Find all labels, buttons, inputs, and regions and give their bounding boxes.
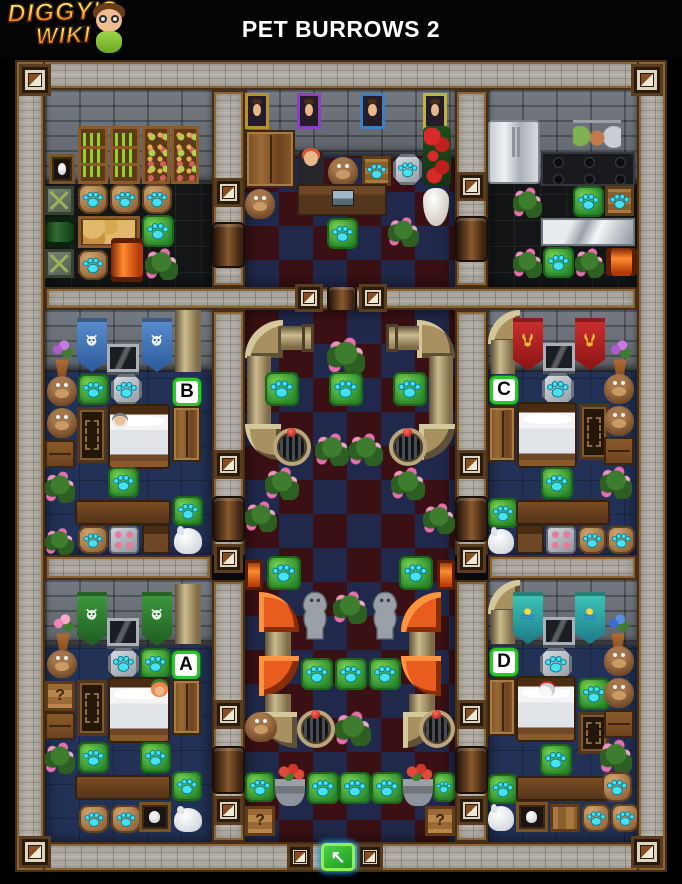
paw-tile [393, 372, 427, 406]
paw-tile [327, 218, 358, 249]
banner [513, 318, 543, 370]
paw-tile [329, 372, 363, 406]
mole-pet [604, 374, 634, 404]
banner [575, 592, 605, 644]
banner [77, 592, 107, 646]
paw-sack [78, 526, 108, 554]
mole-pet [604, 678, 634, 708]
bronze-pipe-elbow [417, 320, 455, 358]
rose-bush [423, 126, 451, 186]
bronze-pipe [281, 326, 303, 350]
wardrobe [488, 678, 516, 736]
bronze-pipe-cap [386, 324, 398, 352]
pink-flowers [333, 590, 367, 624]
pink-flowers [45, 470, 75, 503]
paw-tile [540, 744, 572, 776]
pink-flowers [265, 466, 299, 500]
wardrobe [172, 406, 201, 462]
bed [108, 677, 170, 743]
corner-block-icon [457, 172, 486, 201]
burrow-map: B??CA?D↖ [15, 60, 667, 872]
corner-block-icon [19, 64, 51, 96]
paw-tile [142, 215, 174, 247]
bronze-pipe [175, 584, 201, 644]
bed [516, 676, 576, 742]
room-label: D [490, 648, 518, 676]
orange-pipe [606, 248, 637, 276]
paw-tile [172, 771, 202, 801]
paw-sack [607, 526, 635, 554]
pink-flowers [45, 527, 74, 555]
room-pantry [45, 90, 212, 287]
television [543, 617, 575, 645]
pipe-vent-icon [389, 428, 427, 466]
door [212, 746, 245, 794]
stone-wall [45, 555, 212, 580]
pink-flowers [315, 432, 349, 466]
bed [517, 402, 577, 468]
paw-tile [78, 742, 109, 773]
white-pet [174, 808, 202, 832]
npc-girl [298, 150, 324, 188]
paw-sack [79, 805, 109, 833]
door [455, 496, 488, 542]
pet-picture [516, 802, 548, 832]
question-crate: ? [425, 806, 455, 836]
paw-tile [573, 186, 604, 217]
sleeping-dog [539, 683, 555, 698]
paw-tile [173, 496, 203, 526]
corner-block-icon [214, 178, 243, 207]
wardrobe [172, 679, 201, 735]
pink-flowers [513, 186, 542, 218]
armchair [516, 524, 544, 554]
paw-tile [267, 556, 301, 590]
corner-block-icon [287, 844, 313, 870]
paw-tile [543, 247, 574, 278]
flower-pot [604, 614, 632, 650]
paw-tile [140, 742, 171, 773]
gargoyle-statue [299, 584, 331, 646]
wardrobe [488, 406, 516, 462]
banner [575, 318, 605, 370]
pink-flowers [388, 216, 419, 247]
gargoyle-statue [369, 584, 401, 646]
pink-flowers [423, 502, 455, 534]
stone-wall [15, 60, 667, 90]
pink-flowers [45, 741, 75, 774]
corner-block-icon [357, 844, 383, 870]
dresser [45, 440, 75, 468]
flower-urn [275, 764, 305, 806]
wardrobe [245, 130, 295, 188]
portrait [245, 93, 269, 129]
paw-tile [399, 556, 433, 590]
rug [77, 680, 107, 736]
flower-urn [403, 764, 433, 806]
paw-tile [307, 772, 339, 804]
corner-block-icon [631, 64, 663, 96]
paw-tile [433, 772, 455, 802]
exit-arrow-button[interactable]: ↖ [321, 843, 355, 871]
corner-block-icon [214, 700, 243, 729]
bottle-shelf [110, 126, 140, 184]
paw-tile [245, 772, 275, 802]
fridge [488, 120, 540, 184]
mossy-crate [45, 186, 74, 215]
paw-tile [140, 648, 171, 679]
metal-cube [546, 526, 576, 554]
page-title: PET BURROWS 2 [0, 16, 682, 43]
bronze-pipe-elbow [245, 320, 283, 358]
orange-pipe-elbow [259, 592, 299, 632]
orange-pipe-elbow [401, 592, 441, 632]
orange-pipe-cap [437, 560, 455, 590]
bench [516, 776, 610, 801]
mole-pet [47, 408, 77, 438]
dresser [604, 437, 634, 465]
paw-sack [582, 804, 610, 832]
mole-pet [604, 406, 634, 436]
bronze-pipe [491, 610, 515, 644]
pink-flowers [575, 247, 604, 278]
pink-flowers [349, 432, 383, 466]
pot-rack [573, 120, 621, 148]
sleeping-dwarf [112, 416, 129, 430]
bottle-shelf [78, 126, 108, 184]
banner [513, 592, 543, 644]
green-barrel [45, 217, 74, 247]
door [212, 496, 245, 542]
paw-tile [488, 498, 518, 528]
paw-crate [605, 186, 634, 216]
food-shelf [171, 126, 199, 184]
kitchen-counter [541, 218, 635, 246]
corner-block-icon [214, 796, 243, 825]
paw-tile [488, 774, 518, 804]
paw-tile [369, 658, 401, 690]
room-label: A [172, 651, 200, 679]
pipe-vent-icon [273, 428, 311, 466]
bronze-pipe-cap [302, 324, 314, 352]
pink-flowers [145, 247, 178, 280]
mole-pet [245, 712, 277, 742]
bench [75, 775, 171, 800]
bronze-pipe [397, 326, 419, 350]
room-room-a: A? [45, 580, 212, 842]
question-crate: ? [245, 806, 275, 836]
portrait [423, 93, 447, 129]
stone-paw-tile [108, 648, 139, 679]
paw-tile [335, 658, 367, 690]
paw-tile [371, 772, 403, 804]
paw-tile [541, 467, 573, 499]
room-room-b: B [45, 310, 212, 555]
question-crate: ? [45, 681, 75, 711]
corner-block-icon [457, 796, 486, 825]
room-room-c: C [488, 310, 637, 555]
bench [516, 500, 610, 525]
paw-tile [78, 374, 109, 405]
paw-sack [111, 805, 141, 833]
portrait [297, 93, 321, 129]
corner-block-icon [359, 284, 387, 312]
paw-sack [611, 804, 637, 832]
white-pet [488, 806, 514, 831]
white-pet [488, 529, 514, 554]
corner-block-icon [457, 544, 486, 573]
orange-pipe-elbow [401, 656, 441, 696]
paw-tile [301, 658, 333, 690]
pipe-vent-icon [419, 710, 455, 748]
pink-flowers [245, 500, 277, 532]
paw-sack [142, 184, 172, 214]
corner-block-icon [457, 700, 486, 729]
mole-pet [47, 650, 77, 678]
flower-pot [49, 614, 77, 650]
orange-pipe-cap [245, 560, 263, 590]
orange-pipe [111, 238, 143, 282]
paw-sack [578, 526, 606, 554]
sleeping-girl [151, 682, 168, 697]
stone-wall [15, 60, 45, 872]
bronze-pipe [429, 356, 453, 430]
room-gallery [245, 90, 455, 287]
room-label: C [490, 376, 518, 404]
pink-flowers [600, 465, 632, 499]
door [455, 746, 488, 794]
armchair [142, 524, 170, 554]
door [212, 222, 245, 268]
room-kitchen [488, 90, 637, 287]
stone-wall [637, 60, 667, 872]
corner-block-icon [295, 284, 323, 312]
orange-pipe-elbow [259, 656, 299, 696]
wooden-crate [550, 804, 580, 832]
corner-block-icon [19, 836, 51, 868]
mossy-crate [45, 249, 74, 278]
paw-crate [362, 156, 391, 186]
door [327, 285, 357, 312]
paw-sack [110, 184, 140, 214]
television [107, 344, 139, 372]
stone-paw-tile [542, 373, 574, 405]
bed [108, 404, 170, 469]
television [543, 343, 575, 371]
paw-sack [78, 184, 108, 214]
pink-flowers [335, 710, 371, 746]
vase [423, 188, 449, 226]
paw-tile [265, 372, 299, 406]
banner [142, 592, 172, 646]
pink-flowers [327, 336, 365, 374]
banner [77, 318, 107, 372]
corner-block-icon [214, 544, 243, 573]
banner [142, 318, 172, 372]
room-label: B [173, 378, 201, 406]
food-shelf [142, 126, 170, 184]
bronze-pipe [175, 310, 201, 372]
room-room-d: D [488, 580, 637, 842]
dresser [604, 710, 634, 738]
pink-flowers [391, 466, 425, 500]
door [455, 216, 488, 262]
paw-sack [78, 250, 108, 280]
paw-sack [602, 772, 632, 802]
pet-picture [49, 154, 75, 184]
header: DIGGY'S WIKI PET BURROWS 2 [0, 0, 682, 58]
mole-pet [328, 157, 358, 187]
television [107, 618, 139, 646]
dresser [45, 712, 75, 740]
bronze-pipe [491, 340, 515, 374]
mole-pet [604, 646, 634, 676]
white-pet [174, 528, 202, 554]
pink-flowers [600, 738, 632, 774]
mole-pet [245, 189, 275, 219]
metal-cube [109, 526, 139, 554]
paw-tile [339, 772, 371, 804]
stove [541, 152, 635, 186]
pipe-vent-icon [297, 710, 335, 748]
pink-flowers [513, 247, 542, 278]
tulip-pot [48, 340, 76, 376]
stone-paw-tile [393, 154, 422, 185]
stone-wall [488, 555, 637, 580]
paw-tile [108, 467, 139, 498]
bench [75, 500, 171, 525]
corner-block-icon [214, 450, 243, 479]
mole-pet [47, 376, 77, 406]
rug [77, 407, 107, 463]
desk [297, 184, 387, 216]
corner-block-icon [457, 450, 486, 479]
room-hall: ?? [245, 310, 455, 842]
pet-picture [139, 802, 171, 832]
tulip-pot [606, 340, 634, 376]
portrait [360, 93, 385, 129]
corner-block-icon [631, 836, 663, 868]
stone-paw-tile [111, 374, 142, 405]
